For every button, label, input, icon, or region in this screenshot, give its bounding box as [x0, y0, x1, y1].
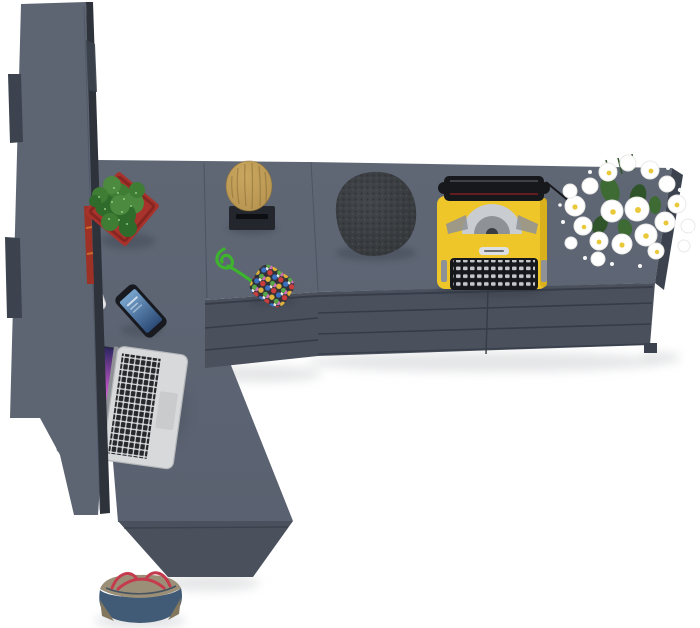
sideboard-foot — [644, 343, 657, 353]
canvas-handbag — [99, 573, 182, 623]
furniture-render-svg — [0, 0, 700, 628]
platen — [444, 176, 544, 201]
wardrobe-step-upper — [8, 74, 23, 143]
product-render — [0, 0, 700, 628]
stump — [226, 161, 272, 211]
wardrobe-step-lower — [5, 237, 22, 318]
lava-stone — [336, 172, 416, 261]
